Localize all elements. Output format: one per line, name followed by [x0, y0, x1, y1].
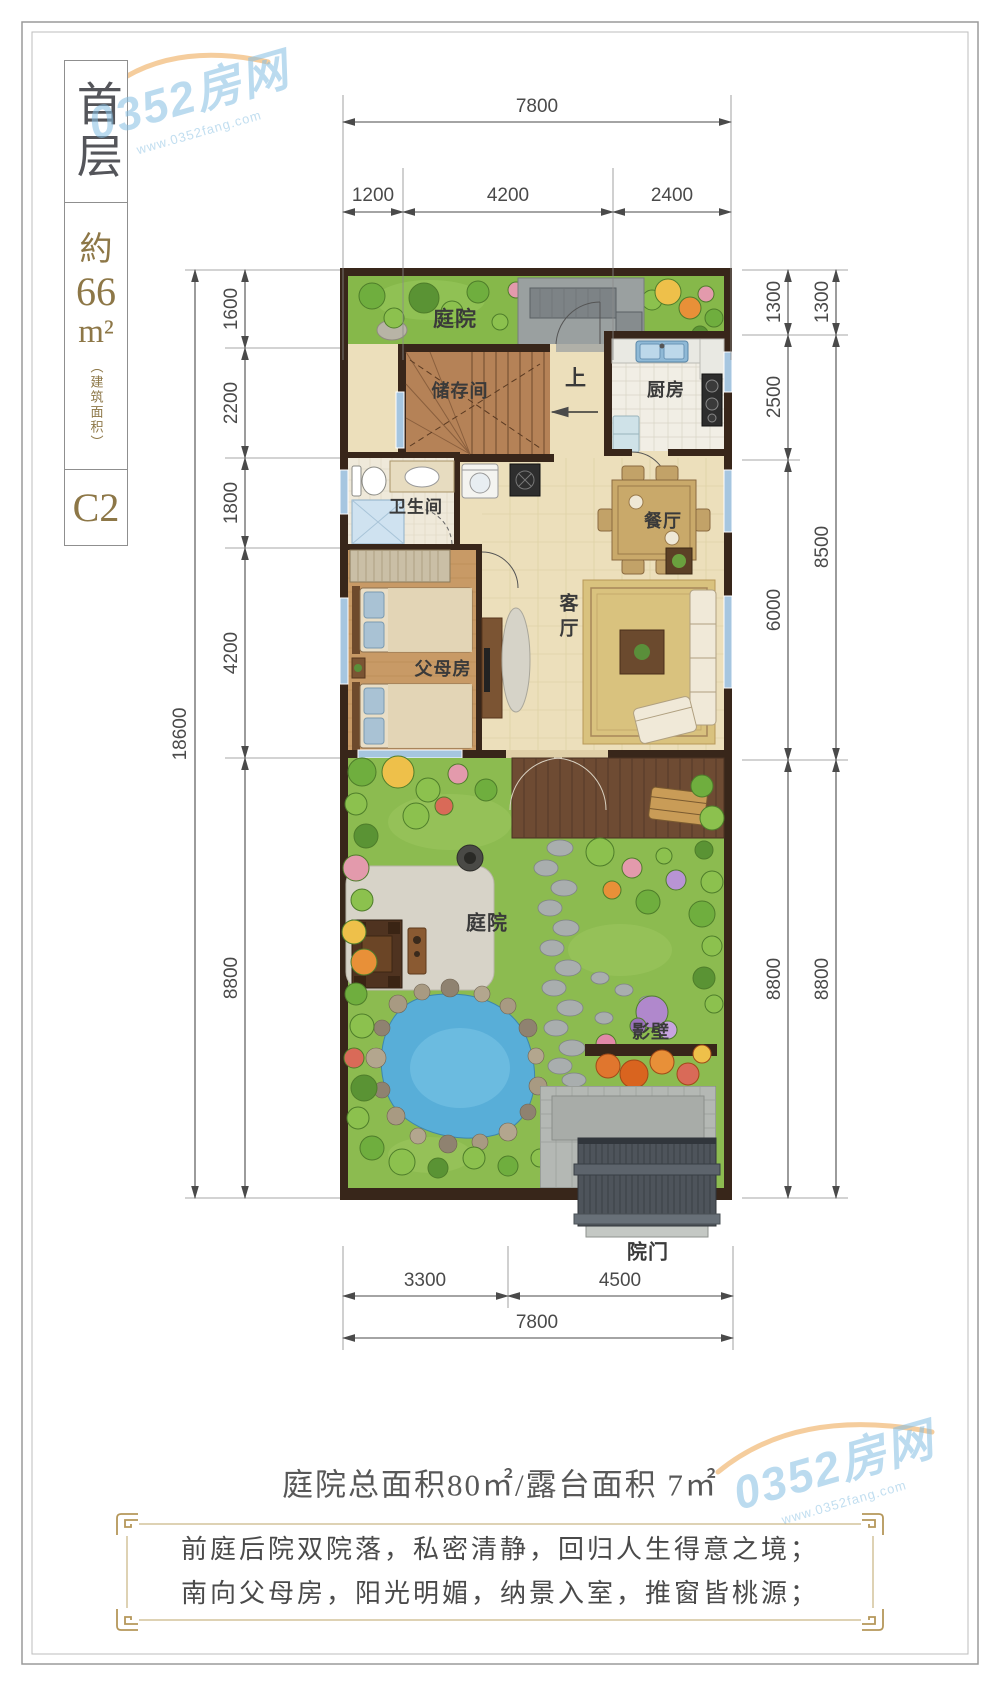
floor-label: 首层	[67, 80, 125, 184]
area-approx-prefix: 約	[80, 222, 113, 270]
room-label-dining: 餐厅	[644, 507, 682, 533]
sidebar-unit-box: C2	[64, 469, 128, 546]
dim-bottom-seg-1: 3300	[404, 1270, 446, 1292]
room-label-storage: 储存间	[432, 377, 489, 403]
room-label-front-yard: 庭院	[433, 303, 477, 333]
dim-right-inner-3: 6000	[764, 589, 786, 631]
unit-code: C2	[73, 484, 120, 531]
room-label-living: 客厅	[554, 593, 581, 643]
room-label-screen-wall: 影壁	[632, 1018, 670, 1044]
room-label-bath: 卫生间	[389, 493, 443, 518]
dim-left-total: 18600	[170, 708, 192, 761]
plot	[340, 268, 732, 1237]
dim-left-seg-2: 2200	[221, 382, 243, 424]
area-summary: 庭院总面积80㎡/露台面积 7㎡	[282, 1460, 718, 1505]
dim-bottom-total: 7800	[516, 1312, 558, 1334]
rear-garden	[342, 756, 724, 1188]
dim-left-seg-4: 4200	[221, 632, 243, 674]
room-label-up: 上	[565, 362, 587, 392]
room-label-rear-yard: 庭院	[466, 907, 508, 936]
description-line-2: 南向父母房，阳光明媚，纳景入室，推窗皆桃源；	[181, 1572, 819, 1616]
area-note: （建筑面积）	[87, 360, 106, 450]
area-value: 66	[76, 270, 116, 314]
dim-right-inner-4: 8800	[764, 958, 786, 1000]
dim-left-seg-3: 1800	[221, 482, 243, 524]
dim-top-total: 7800	[516, 96, 558, 118]
floorplan-page: { "watermark": { "brand": "0352房网", "url…	[0, 0, 1000, 1686]
dim-top-seg-1: 1200	[352, 185, 394, 207]
description-box: 前庭后院双院落，私密清静，回归人生得意之境； 南向父母房，阳光明媚，纳景入室，推…	[127, 1524, 873, 1620]
dim-top-seg-3: 2400	[651, 185, 693, 207]
dim-right-outer-3: 8800	[812, 958, 834, 1000]
dim-right-outer-2: 8500	[812, 526, 834, 568]
floorplan-graphic	[0, 0, 1000, 1686]
dim-right-inner-2: 2500	[764, 376, 786, 418]
gate	[574, 1138, 720, 1237]
dim-top-seg-2: 4200	[487, 185, 529, 207]
sidebar-area-box: 約 66 m² （建筑面积）	[64, 202, 128, 470]
dim-left-seg-1: 1600	[221, 288, 243, 330]
dim-left-seg-5: 8800	[221, 957, 243, 999]
area-unit: m²	[78, 314, 114, 350]
dim-bottom-seg-2: 4500	[599, 1270, 641, 1292]
sidebar-floor-box: 首层	[64, 60, 128, 203]
room-label-gate: 院门	[627, 1236, 669, 1265]
dim-right-inner-1: 1300	[764, 281, 786, 323]
room-label-parents: 父母房	[415, 655, 472, 681]
dim-right-outer-1: 1300	[812, 281, 834, 323]
description-line-1: 前庭后院双院落，私密清静，回归人生得意之境；	[181, 1528, 819, 1572]
room-label-kitchen: 厨房	[647, 376, 685, 402]
